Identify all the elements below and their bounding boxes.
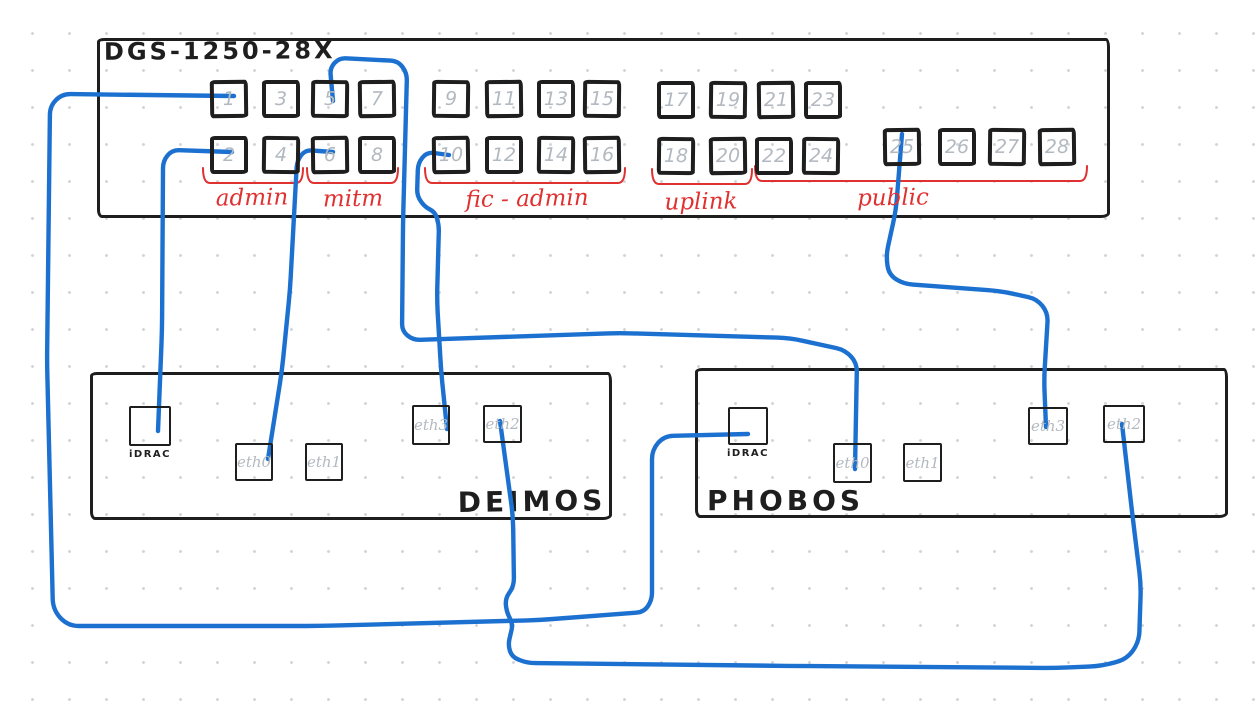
port-label: eth1 xyxy=(307,453,341,471)
switch-port-number: 21 xyxy=(764,89,788,111)
deimos-port-eth2[interactable]: eth2 xyxy=(483,405,522,443)
switch-port-number: 20 xyxy=(716,145,740,167)
phobos-port-idrac[interactable] xyxy=(728,407,768,445)
switch-port-5[interactable]: 5 xyxy=(311,80,349,118)
port-label: eth1 xyxy=(905,454,939,472)
switch-port-number: 10 xyxy=(439,144,463,166)
port-label: iDRAC xyxy=(129,449,171,460)
switch-port-number: 4 xyxy=(275,144,287,166)
switch-title[interactable]: DGS-1250-28X xyxy=(104,36,336,66)
deimos-port-eth1[interactable]: eth1 xyxy=(305,443,343,481)
deimos-port-idrac[interactable] xyxy=(129,406,171,446)
switch-port-16[interactable]: 16 xyxy=(583,136,621,174)
switch-port-21[interactable]: 21 xyxy=(757,81,795,119)
switch-port-number: 8 xyxy=(371,144,383,166)
switch-port-27[interactable]: 27 xyxy=(988,128,1026,166)
switch-port-10[interactable]: 10 xyxy=(432,136,470,174)
port-label: eth0 xyxy=(835,454,869,472)
switch-port-number: 16 xyxy=(590,144,614,166)
switch-port-17[interactable]: 17 xyxy=(657,81,695,119)
group-label-mitm[interactable]: mitm xyxy=(323,185,384,212)
switch-port-number: 7 xyxy=(371,88,383,110)
switch-port-18[interactable]: 18 xyxy=(657,137,695,175)
switch-port-number: 2 xyxy=(223,144,235,166)
switch-port-11[interactable]: 11 xyxy=(485,80,523,118)
port-label: eth2 xyxy=(1107,415,1141,433)
switch-port-number: 9 xyxy=(445,88,457,110)
switch-port-number: 27 xyxy=(995,136,1019,158)
switch-port-number: 5 xyxy=(324,88,336,110)
switch-port-number: 25 xyxy=(890,136,914,158)
switch-port-number: 15 xyxy=(590,88,614,110)
switch-port-26[interactable]: 26 xyxy=(938,128,976,166)
group-label-admin[interactable]: admin xyxy=(216,184,289,211)
server-phobos-name[interactable]: PHOBOS xyxy=(707,484,864,517)
port-label: eth3 xyxy=(414,416,448,434)
switch-port-1[interactable]: 1 xyxy=(210,80,248,118)
switch-port-2[interactable]: 2 xyxy=(210,136,248,174)
switch-port-6[interactable]: 6 xyxy=(311,136,349,174)
drawing-canvas: DGS-1250-28X DEIMOS PHOBOS 1357246891113… xyxy=(0,0,1256,703)
phobos-port-eth1[interactable]: eth1 xyxy=(903,443,942,482)
switch-port-9[interactable]: 9 xyxy=(432,80,470,118)
switch-port-24[interactable]: 24 xyxy=(802,137,840,175)
port-label: eth3 xyxy=(1031,417,1065,435)
switch-port-number: 22 xyxy=(762,145,786,167)
deimos-port-eth0[interactable]: eth0 xyxy=(235,443,273,481)
switch-port-number: 23 xyxy=(811,89,835,111)
deimos-port-eth3[interactable]: eth3 xyxy=(412,405,450,445)
port-label: iDRAC xyxy=(727,448,769,459)
switch-port-14[interactable]: 14 xyxy=(537,136,575,174)
switch-port-28[interactable]: 28 xyxy=(1038,128,1076,166)
switch-port-number: 17 xyxy=(664,89,688,111)
phobos-port-eth2[interactable]: eth2 xyxy=(1103,405,1145,443)
switch-port-number: 11 xyxy=(492,88,516,110)
phobos-port-eth3[interactable]: eth3 xyxy=(1028,407,1068,445)
switch-port-number: 18 xyxy=(664,145,688,167)
switch-port-number: 6 xyxy=(324,144,336,166)
switch-port-7[interactable]: 7 xyxy=(358,80,396,118)
switch-port-4[interactable]: 4 xyxy=(262,136,300,174)
switch-port-number: 24 xyxy=(809,145,833,167)
switch-port-number: 14 xyxy=(544,144,568,166)
port-label: eth2 xyxy=(485,415,519,433)
port-label: eth0 xyxy=(237,453,271,471)
switch-port-19[interactable]: 19 xyxy=(709,81,747,119)
phobos-port-eth0[interactable]: eth0 xyxy=(833,443,872,483)
switch-port-25[interactable]: 25 xyxy=(883,128,921,166)
group-label-fic-admin[interactable]: fic - admin xyxy=(465,185,588,213)
switch-port-number: 26 xyxy=(945,136,969,158)
switch-port-8[interactable]: 8 xyxy=(358,136,396,174)
switch-port-22[interactable]: 22 xyxy=(755,137,793,175)
switch-port-23[interactable]: 23 xyxy=(804,81,842,119)
switch-port-13[interactable]: 13 xyxy=(537,80,575,118)
switch-port-number: 3 xyxy=(275,88,287,110)
switch-port-number: 12 xyxy=(492,144,516,166)
switch-port-number: 19 xyxy=(716,89,740,111)
switch-port-20[interactable]: 20 xyxy=(709,137,747,175)
server-deimos-name[interactable]: DEIMOS xyxy=(457,484,606,519)
group-label-public[interactable]: public xyxy=(857,184,929,211)
group-label-uplink[interactable]: uplink xyxy=(664,188,737,215)
switch-port-15[interactable]: 15 xyxy=(583,80,621,118)
switch-port-12[interactable]: 12 xyxy=(485,136,523,174)
switch-port-number: 1 xyxy=(223,88,235,110)
switch-port-3[interactable]: 3 xyxy=(262,80,300,118)
switch-port-number: 28 xyxy=(1045,136,1069,158)
switch-port-number: 13 xyxy=(544,88,568,110)
